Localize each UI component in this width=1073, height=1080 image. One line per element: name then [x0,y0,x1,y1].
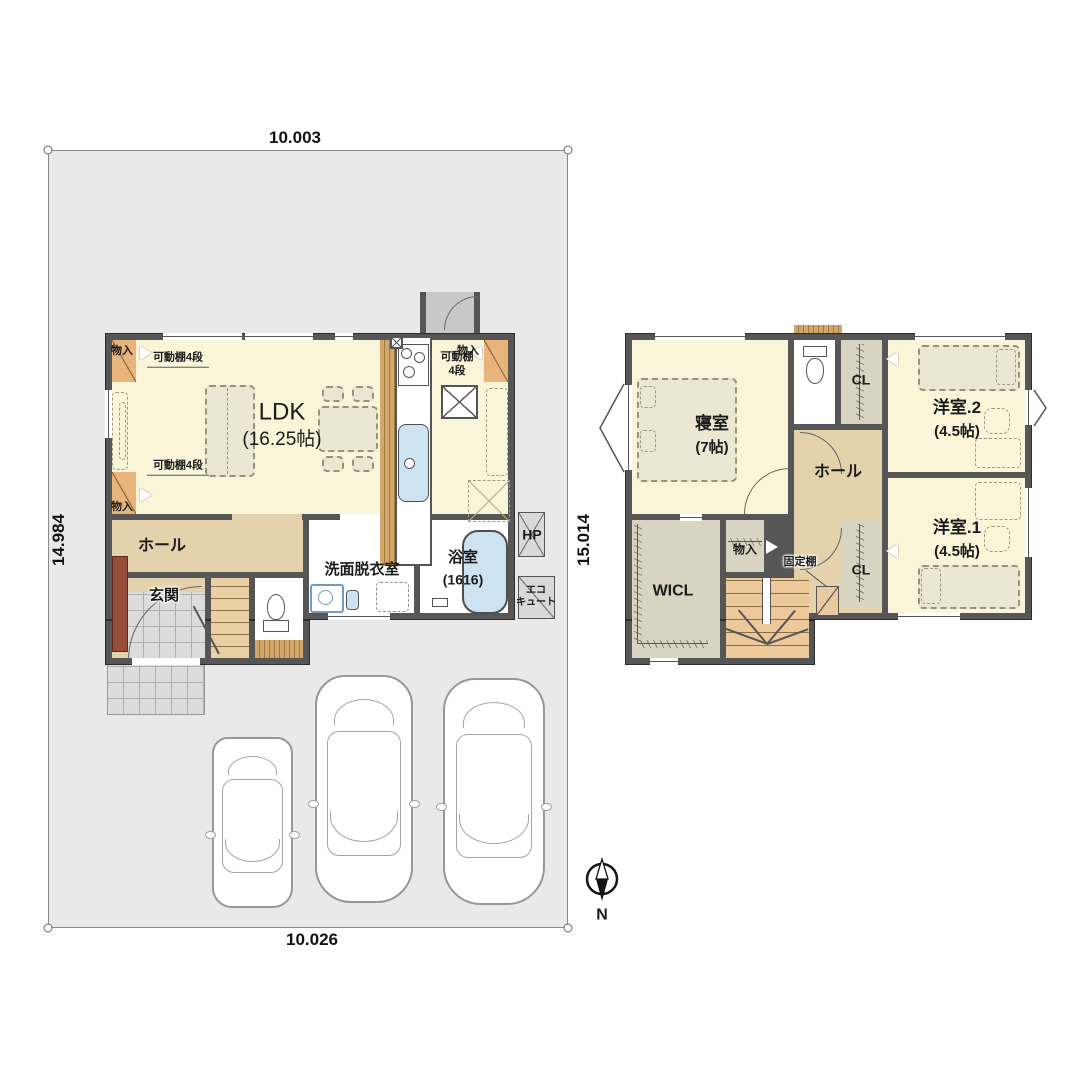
entrance-porch-tiles [107,663,205,715]
north-label: N [596,908,608,925]
label-shelf-4tier: 可動棚4段 [147,461,209,476]
closet-door-mark-icon [886,352,898,366]
window-segment [655,333,745,340]
site-corner-marker [44,146,53,155]
label-ecocute-2: キュート [516,598,556,609]
pillow [921,568,941,604]
label-storage: 物入 [111,502,133,514]
window-segment [680,514,702,521]
vanity-sink [346,590,359,610]
label-western1: 洋室.1 [933,519,981,537]
site-corner-marker [564,924,573,933]
label-bath-size: (1616) [443,573,483,588]
pantry-counter-dashed [486,388,508,476]
label-wicl: WICL [653,584,694,601]
chair [984,408,1010,434]
label-cl-lower: CL [852,563,871,578]
toilet-1f-wood-floor [255,640,303,658]
site-corner-marker [564,146,573,155]
pillow [996,349,1016,385]
dimension-left: 14.984 [50,514,68,566]
label-washroom: 洗面脱衣室 [324,562,399,578]
window-segment [328,613,390,620]
car-mirror [205,831,216,839]
stove-burner [403,366,415,378]
closet-door-mark-icon [766,540,778,554]
door-opening [650,658,678,665]
label-ldk: LDK [259,399,306,424]
window-segment [625,385,632,470]
closet-rod [638,640,708,648]
dining-chair [352,456,374,472]
stove-burner [414,352,425,363]
label-hall-2f: ホール [814,465,862,482]
toilet-tank [803,346,827,357]
desk [975,482,1021,520]
floorplan-canvas: 10.003 10.026 14.984 15.014 [0,0,1073,1080]
label-cl-upper: CL [852,373,871,388]
bath-stool [432,598,448,607]
stairs-1f [211,578,249,658]
chair [984,526,1010,552]
car-sedan [315,675,413,903]
closet-door-mark-icon [886,544,898,558]
window-segment [245,333,313,340]
sink-drain [404,458,415,469]
car-sedan [443,678,545,905]
label-ldk-size: (16.25帖) [242,430,321,450]
window-segment [1025,488,1032,557]
toilet-bowl [806,358,824,384]
window-segment [1025,390,1032,425]
stove-burner [401,348,412,359]
toilet-bowl [267,594,285,620]
range-hood-duct [390,336,403,349]
casement-window-icon [596,382,626,474]
label-storage: 物入 [111,346,133,358]
label-fixed-shelf: 固定棚 [784,557,817,569]
window-segment [898,613,960,620]
site-corner-marker [44,924,53,933]
toilet-tank [263,620,289,632]
label-shelf-kitchen-2: 4段 [448,366,465,378]
refrigerator-space [441,385,478,419]
fixed-shelf [816,586,839,616]
car-mirror [289,831,300,839]
dining-table [318,406,378,452]
label-bedroom: 寝室 [695,415,729,433]
label-shelf-kitchen-1: 可動棚 [441,352,474,364]
dimension-top: 10.003 [269,129,321,147]
car-rear-window [228,756,277,775]
tv [119,402,126,460]
sofa-seat-line [227,388,228,474]
label-shelf-4tier: 可動棚4段 [147,353,209,368]
dining-chair [322,456,344,472]
closet-rod [634,524,642,644]
dimension-right: 15.014 [575,514,593,566]
casement-window-icon [1032,388,1048,428]
window-segment [163,333,242,340]
car-mirror [541,803,552,811]
label-storage-2f: 物入 [733,544,757,557]
desk [975,438,1021,468]
car-compact [212,737,293,908]
north-arrow-icon [582,856,622,908]
car-rear-window [334,699,394,725]
wall-opening [232,514,302,520]
dining-chair [352,386,374,402]
label-western1-size: (4.5帖) [934,544,980,560]
washroom-dashed-space [376,582,409,612]
shoe-cabinet [112,556,128,652]
louver-strip [794,325,842,333]
dining-chair [322,386,344,402]
closet-door-mark-icon [140,488,152,502]
window-segment [105,390,112,438]
window-segment [335,333,353,340]
label-hall-1f: ホール [138,539,186,556]
label-ecocute-1: エコ [526,586,546,597]
kitchen-counter-front [380,340,395,566]
car-mirror [308,800,319,808]
label-western2-size: (4.5帖) [934,424,980,440]
label-entrance: 玄関 [149,588,179,604]
window-segment [915,333,1005,340]
stair-void [762,578,771,624]
car-mirror [436,803,447,811]
pillow [640,430,656,452]
dimension-bottom: 10.026 [286,931,338,949]
label-western2: 洋室.2 [933,399,981,417]
label-bedroom-size: (7帖) [695,440,728,456]
closet-storage-1f-c [484,340,508,382]
car-rear-window [463,702,526,728]
washing-machine-drum [318,590,333,605]
appliance-space-dashed [468,480,510,522]
label-bath: 浴室 [448,550,478,566]
pillow [640,386,656,408]
label-heat-pump: HP [522,528,541,543]
